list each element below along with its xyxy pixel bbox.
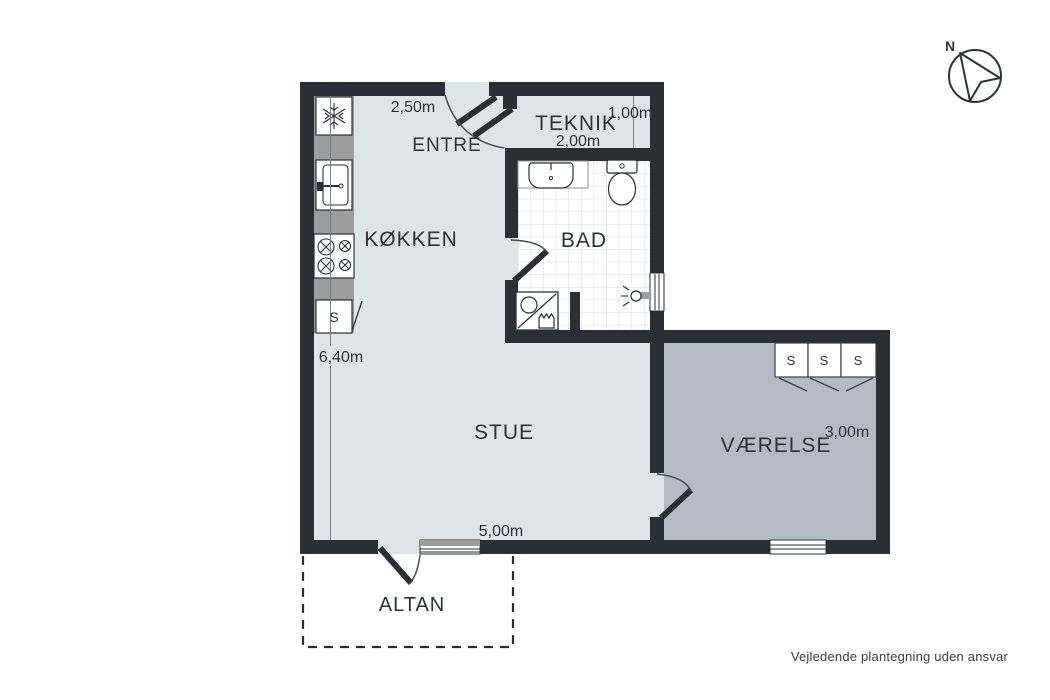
- entry-opening: [445, 82, 489, 96]
- kitchen-sink-icon: [316, 160, 352, 210]
- north-label: N: [945, 38, 955, 54]
- stove-icon: [314, 234, 354, 278]
- room-label-altan: ALTAN: [379, 594, 446, 616]
- wardrobe-label-1: S: [787, 353, 796, 368]
- room-label-stue: STUE: [474, 421, 534, 444]
- wardrobe-label-3: S: [854, 353, 863, 368]
- room-label-bad: BAD: [561, 229, 607, 252]
- floor-plan-page: 2,50m ENTRÉ TEKNIK 1,00m 2,00m KØKKEN BA…: [0, 0, 1050, 700]
- measurement-vaerelse-width: 3,00m: [825, 424, 869, 441]
- bathroom-sink-icon: [518, 161, 588, 188]
- room-label-entre: ENTRÉ: [412, 135, 481, 156]
- measurement-teknik-depth: 1,00m: [608, 105, 652, 122]
- measurement-kokken-left: 6,40m: [319, 349, 363, 366]
- room-label-kokken: KØKKEN: [364, 228, 458, 251]
- compass-icon: [949, 50, 1001, 102]
- bedroom-opening: [650, 473, 664, 517]
- window-vaerelse: [770, 540, 826, 554]
- window-bad: [650, 273, 664, 311]
- wardrobe-label-2: S: [820, 353, 829, 368]
- kitchen-cabinet-label: S: [329, 309, 338, 325]
- bath-wall-stub: [570, 292, 580, 330]
- freezer-icon: [316, 97, 352, 135]
- measurement-kokken-top: 2,50m: [391, 99, 435, 116]
- washing-machine-icon: [516, 292, 558, 330]
- measurement-teknik-width: 2,00m: [556, 133, 600, 150]
- toilet-icon: [607, 160, 637, 205]
- measurement-stue-bottom: 5,00m: [479, 523, 523, 540]
- disclaimer-text: Vejledende plantegning uden ansvar: [791, 649, 1009, 664]
- room-label-teknik: TEKNIK: [535, 112, 617, 135]
- window-stue: [420, 540, 480, 554]
- floor-plan-svg: 2,50m ENTRÉ TEKNIK 1,00m 2,00m KØKKEN BA…: [0, 0, 1050, 700]
- room-label-vaerelse: VÆRELSE: [721, 434, 832, 457]
